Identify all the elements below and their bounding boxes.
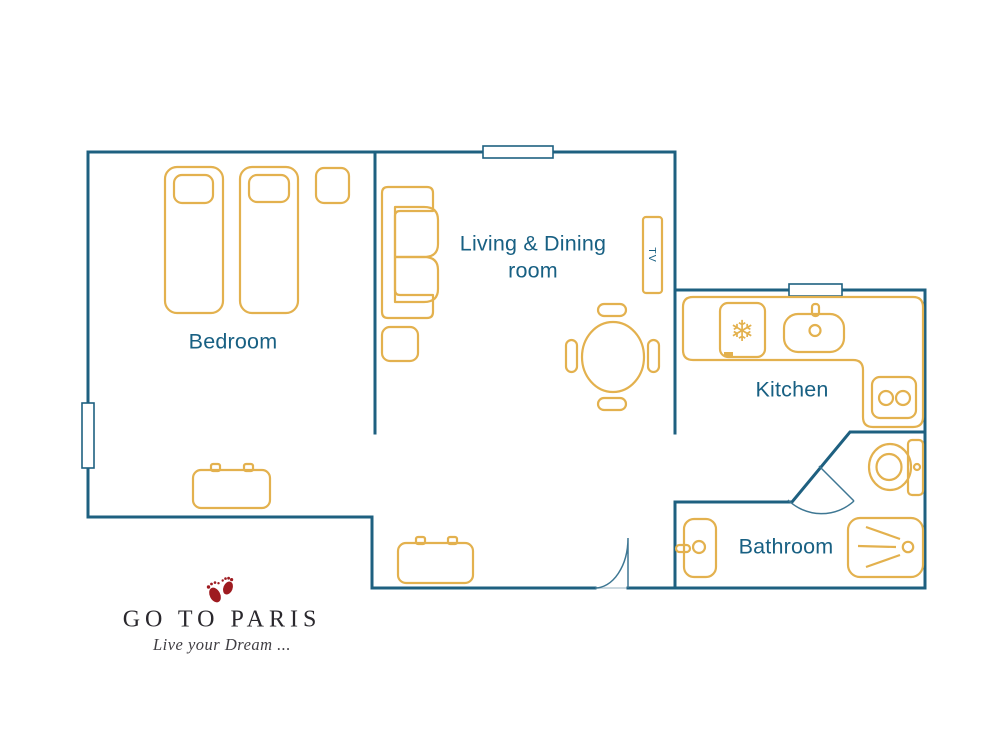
- side-table-icon: [382, 327, 418, 361]
- room-label-bathroom: Bathroom: [739, 535, 834, 560]
- dining-chair-right: [648, 340, 659, 372]
- walls: [88, 152, 925, 588]
- hallway-sideboard-icon: [398, 537, 473, 583]
- room-label-living-dining-line1: Living & Dining: [460, 231, 606, 258]
- bed-2-pillow: [249, 175, 289, 202]
- burner-left: [879, 391, 893, 405]
- tv-label: TV: [646, 247, 658, 262]
- exterior-and-interior-walls: [88, 152, 925, 588]
- bathroom-sink-icon: [676, 519, 716, 577]
- bed-2-icon: [240, 167, 298, 313]
- entrance-door-icon: [595, 538, 628, 588]
- room-label-living-dining-line2: room: [460, 257, 606, 284]
- shower-icon: [848, 518, 923, 577]
- bedroom-window: [82, 403, 94, 468]
- living-room-window: [483, 146, 553, 158]
- bedroom-dresser-icon: [193, 464, 270, 508]
- shower-head: [903, 542, 913, 552]
- snowflake-icon: ❄: [730, 314, 754, 348]
- sofa-cushion-1: [395, 207, 438, 257]
- kitchen-window: [789, 284, 842, 296]
- room-label-kitchen: Kitchen: [755, 378, 828, 403]
- sofa-icon: [382, 187, 438, 318]
- floorplan: ❄: [0, 0, 1000, 750]
- footprints-icon: [207, 577, 235, 605]
- dining-chair-left: [566, 340, 577, 372]
- toilet-icon: [869, 440, 923, 495]
- logo-title: GO TO PARIS: [123, 607, 322, 634]
- floorplan-drawing: ❄: [0, 0, 1000, 750]
- room-label-bedroom: Bedroom: [189, 330, 278, 355]
- logo-tagline: Live your Dream ...: [153, 635, 291, 655]
- stove-icon: [872, 377, 916, 418]
- bathroom-door-icon: [788, 466, 854, 514]
- bed-1-icon: [165, 167, 223, 313]
- dining-chair-bottom: [598, 398, 626, 410]
- fridge-icon: ❄: [720, 303, 765, 357]
- dining-table-icon: [566, 304, 659, 410]
- shower-spray: [858, 527, 900, 567]
- dining-chair-top: [598, 304, 626, 316]
- nightstand-icon: [316, 168, 349, 203]
- doors: [595, 466, 854, 588]
- windows: [82, 146, 842, 468]
- burner-right: [896, 391, 910, 405]
- bed-1-pillow: [174, 175, 213, 203]
- kitchen-sink-icon: [784, 304, 844, 352]
- room-label-living-dining: Living & Dining room: [460, 231, 606, 284]
